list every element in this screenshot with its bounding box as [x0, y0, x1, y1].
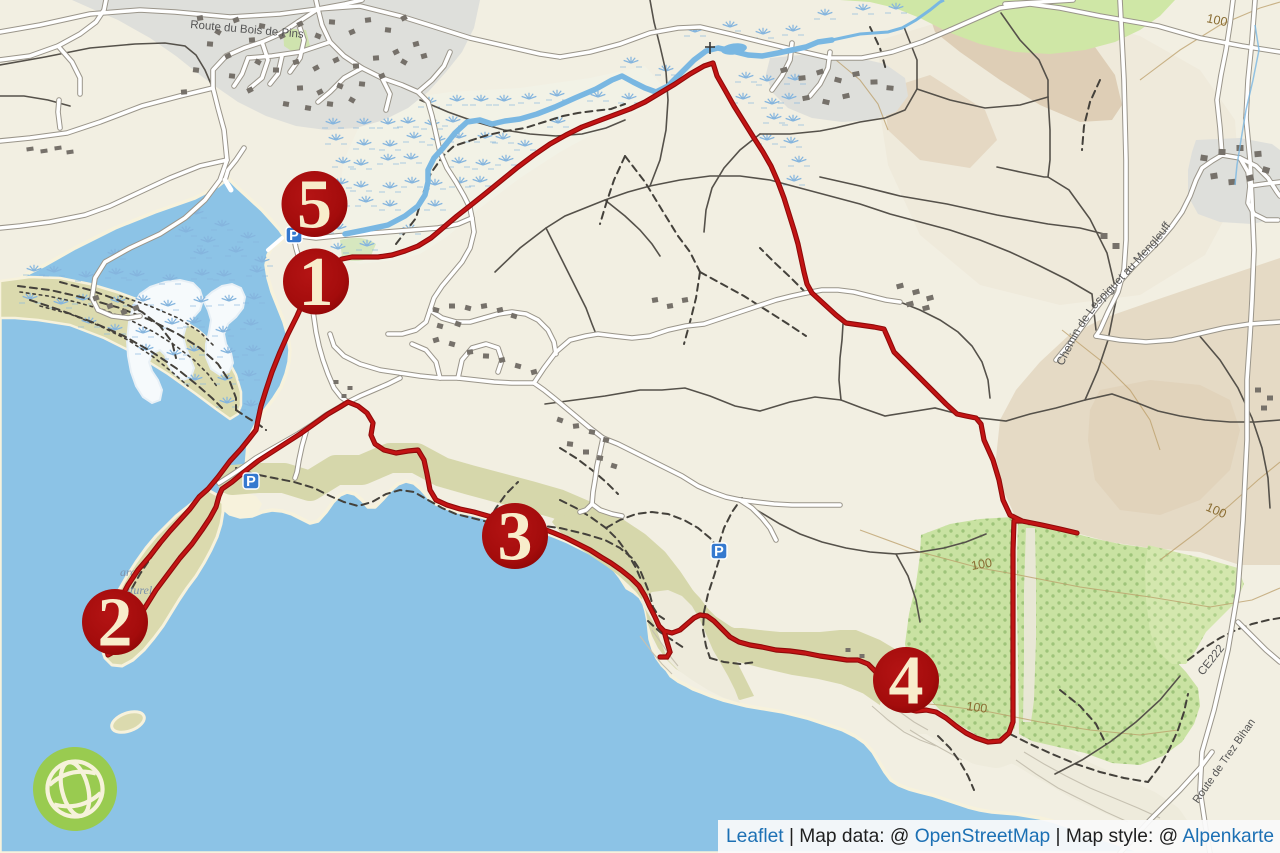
- svg-text:5: 5: [297, 167, 332, 244]
- svg-text:2: 2: [98, 585, 133, 662]
- svg-text:1: 1: [299, 244, 334, 321]
- svg-text:P: P: [246, 474, 256, 490]
- svg-text:P: P: [714, 544, 724, 560]
- svg-text:100: 100: [966, 699, 989, 716]
- svg-text:3: 3: [498, 499, 533, 576]
- svg-text:4: 4: [889, 643, 924, 720]
